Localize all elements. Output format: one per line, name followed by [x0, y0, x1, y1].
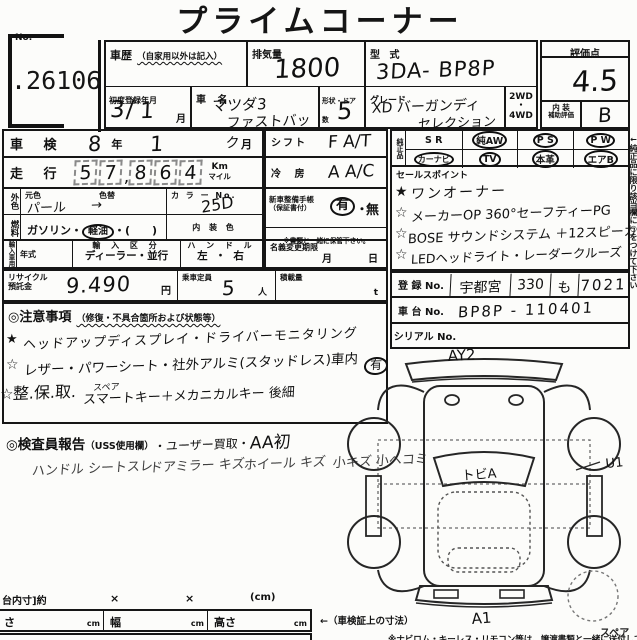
doors-value: 5 — [336, 97, 353, 126]
caution-line-3: ☆ 整.保.取. スペア スマートキー＋メカニカルキー 後細 — [0, 375, 386, 403]
mileage-digit: 7 — [98, 160, 122, 186]
inspector-aa-note: AA初 — [249, 427, 291, 453]
chassis-number: BP8P - 110401 — [458, 299, 595, 322]
drive-type-cell: 2WD ・ 4WD — [506, 87, 536, 127]
part-pw: P W — [573, 131, 629, 149]
color-value: パール — [27, 196, 67, 216]
cautions-header: ◎注意事項 — [8, 310, 71, 325]
sales-point-4: ☆ LEDヘッドライト・レーダークルーズ — [392, 244, 628, 265]
part-sr: S R — [406, 131, 462, 149]
cargo-dims-line: 台内寸]約 × × (cm) — [0, 592, 320, 608]
part-ps: P S — [517, 131, 573, 149]
diagram-right-annotation: U1 — [605, 455, 624, 472]
mileage-digit: 8 — [129, 160, 153, 186]
interior-grade-label: 内 装 補助評価 — [542, 102, 582, 127]
sales-point-2: ☆ メーカーOP 360°セーフティーPG — [392, 202, 628, 223]
fuel-cell: ガソリン・軽油・( ) — [21, 215, 166, 241]
interior-color-cell: 内 装 色 — [166, 215, 262, 241]
mileage-row: 走 行 5 7 , 8 6 4 Km マイル — [2, 158, 264, 189]
inspector-header: ◎検査員報告 — [6, 433, 85, 453]
rating-header: 評価点 — [542, 42, 628, 58]
import-row: 輸入車用 年式 輸 入 区 分 ディーラー・並行 ハ ン ド ル 左 ・ 右 — [2, 241, 264, 269]
color-no-cell: カ ラ ー No. 25D — [166, 189, 262, 215]
mileage-digit: 6 — [154, 160, 178, 186]
diagram-spare-label: スペア — [600, 627, 629, 639]
no-label: No. — [15, 33, 32, 43]
chassis-row: 車 台 No. BP8P - 110401 — [390, 298, 630, 324]
color-no-value: 25D — [201, 192, 235, 217]
capacity-value: 5 — [221, 276, 235, 301]
service-book-no: 無 — [366, 199, 379, 218]
car-damage-diagram: AY2 トビA U1 A1 スペア — [330, 346, 637, 640]
fuel-label: 燃料 — [4, 215, 21, 241]
rating-box: 評価点 4.5 内 装 補助評価 B — [540, 40, 630, 129]
star-icon: ★ — [395, 184, 411, 200]
import-use-label: 輸入車用 — [4, 241, 17, 267]
handle-cell: ハ ン ド ル 左 ・ 右 — [181, 241, 262, 267]
load-cell: 積載量 t — [276, 271, 386, 300]
grade-cell: グレード XD バーガンディ セレクション — [366, 87, 506, 127]
vehicle-history-label: 車歴 — [110, 49, 132, 62]
aircon-value: A A/C — [327, 161, 374, 183]
displacement-value: 1800 — [273, 53, 341, 85]
base-color-cell: 元色 色替 パール → — [21, 189, 166, 215]
name-change-cell: 名義変更期限 月 日 — [264, 241, 388, 269]
doors-cell: 形状・ドア数 5 — [320, 87, 366, 127]
part-leather: 本革 — [517, 149, 573, 168]
color-fuel-block: 外色 燃料 元色 色替 パール → カ ラ ー No. 25D ガソリン・軽油・… — [2, 189, 264, 241]
diagram-rear-annotation: A1 — [471, 609, 492, 628]
sales-points-header: セールスポイント — [392, 167, 628, 181]
fuel-diesel-circled: 軽油 — [82, 224, 114, 240]
rating-value: 4.5 — [571, 63, 619, 99]
inspector-note-line: ドアミラー キズ — [149, 453, 245, 476]
star-icon: ★ — [6, 332, 18, 347]
recycle-value-cell: 9.490 円 — [58, 271, 178, 300]
exterior-color-label: 外色 — [4, 189, 21, 215]
interior-grade-value: B — [582, 102, 628, 127]
star-icon: ☆ — [6, 357, 19, 373]
page-title: プライムコーナー — [120, 0, 520, 41]
star-icon: ☆ — [395, 226, 408, 242]
part-airbag: エアB — [573, 149, 629, 168]
star-icon: ☆ — [0, 385, 13, 403]
top-table-row2: 初度登録年月 3 / 1 月 車 名 マツダ3 ファストバック 形状・ドア数 5… — [104, 87, 538, 129]
auction-sheet: プライムコーナー No. .26106 車歴 （自家用以外は記入） 排気量 18… — [0, 0, 637, 640]
registration-number: 7021 — [577, 272, 628, 297]
model-code-cell: 型 式 3DA- BP8P — [366, 42, 536, 86]
length-cell: さ cm — [0, 611, 104, 630]
shaken-month: 1 — [150, 131, 165, 156]
part-aw: 純AW — [462, 131, 518, 149]
caution-line-1: ★ ヘッドアップディスプレイ・ドライバーモニタリング — [4, 325, 386, 347]
aircon-cell: 冷 房 A A/C — [264, 158, 388, 189]
part-tv: TV — [462, 149, 518, 168]
model-code-value: 3DA- BP8P — [375, 56, 496, 84]
registration-area: 宇都宮 — [449, 272, 510, 297]
diagram-front-annotation: AY2 — [447, 346, 476, 365]
sales-point-1: ★ ワンオーナー — [392, 181, 628, 202]
lot-number: .26106 — [11, 66, 101, 95]
height-cell: 高さ cm — [208, 611, 310, 630]
genuine-parts-grid: 純正品 S R 純AW P S P W カーナビ TV 本革 エアB — [390, 129, 630, 167]
service-book-yes-circled: 有 — [330, 197, 355, 216]
top-table-row1: 車歴 （自家用以外は記入） 排気量 1800 型 式 3DA- BP8P — [104, 40, 538, 87]
sales-point-3: ☆ BOSE サウンドシステム ＋12スピーカー — [392, 223, 628, 244]
star-icon: ☆ — [395, 205, 411, 221]
model-year-cell: 年式 — [17, 241, 73, 267]
mileage-digit: 5 — [73, 160, 97, 186]
registration-class: 330 — [509, 272, 550, 296]
service-book-cell: 新車整備手帳 （保証書付） 有 ・ 無 ※書類と一緒に保管下さい。 — [264, 189, 388, 241]
part-navi: カーナビ — [406, 149, 462, 168]
first-registration-cell: 初度登録年月 3 / 1 月 — [106, 87, 192, 127]
width-cell: 幅 cm — [104, 611, 208, 630]
inspector-note-line: ホイール キズ — [243, 451, 327, 474]
dimension-row: さ cm 幅 cm 高さ cm — [0, 609, 312, 632]
mileage-unit: Km マイル — [208, 163, 231, 181]
vehicle-history-cell: 車歴 （自家用以外は記入） — [106, 42, 248, 86]
mileage-digit: 4 — [179, 160, 203, 186]
shift-cell: シフト F A/T — [264, 129, 388, 158]
registration-kana: も — [549, 272, 578, 296]
sales-points-box: セールスポイント ★ ワンオーナー ☆ メーカーOP 360°セーフティーPG … — [390, 167, 630, 271]
displacement-cell: 排気量 1800 — [248, 42, 366, 86]
vehicle-name-cell: 車 名 マツダ3 ファストバック — [192, 87, 320, 127]
shaken-year: 8 — [87, 131, 102, 156]
lot-number-block: No. .26106 — [2, 28, 104, 130]
recycle-label: リサイクル 預託金 — [4, 271, 58, 300]
shaken-row: 車 検 8 年 1 月 — [2, 129, 264, 158]
import-class-cell: 輸 入 区 分 ディーラー・並行 — [73, 241, 181, 267]
star-icon: ☆ — [395, 247, 411, 263]
inspector-report-line: ◎検査員報告 （USS使用欄） ・ユーザー買取・ AA初 — [6, 428, 290, 453]
inspector-note-line: ハンドル シートスレ — [31, 455, 154, 479]
registration-row: 登 録 No. 宇都宮 330 も 7021 — [390, 271, 630, 298]
footer-clipped-row: 整 備 手 帳 ・ ス ペ ア キ ー — [0, 633, 312, 640]
shift-value: F A/T — [327, 131, 371, 153]
recycle-row: リサイクル 預託金 9.490 円 乗車定員 5 人 積載量 t — [2, 269, 388, 302]
capacity-cell: 乗車定員 5 人 — [178, 271, 276, 300]
recycle-value: 9.490 — [65, 272, 131, 298]
diagram-windshield-annotation: トビA — [461, 467, 497, 484]
